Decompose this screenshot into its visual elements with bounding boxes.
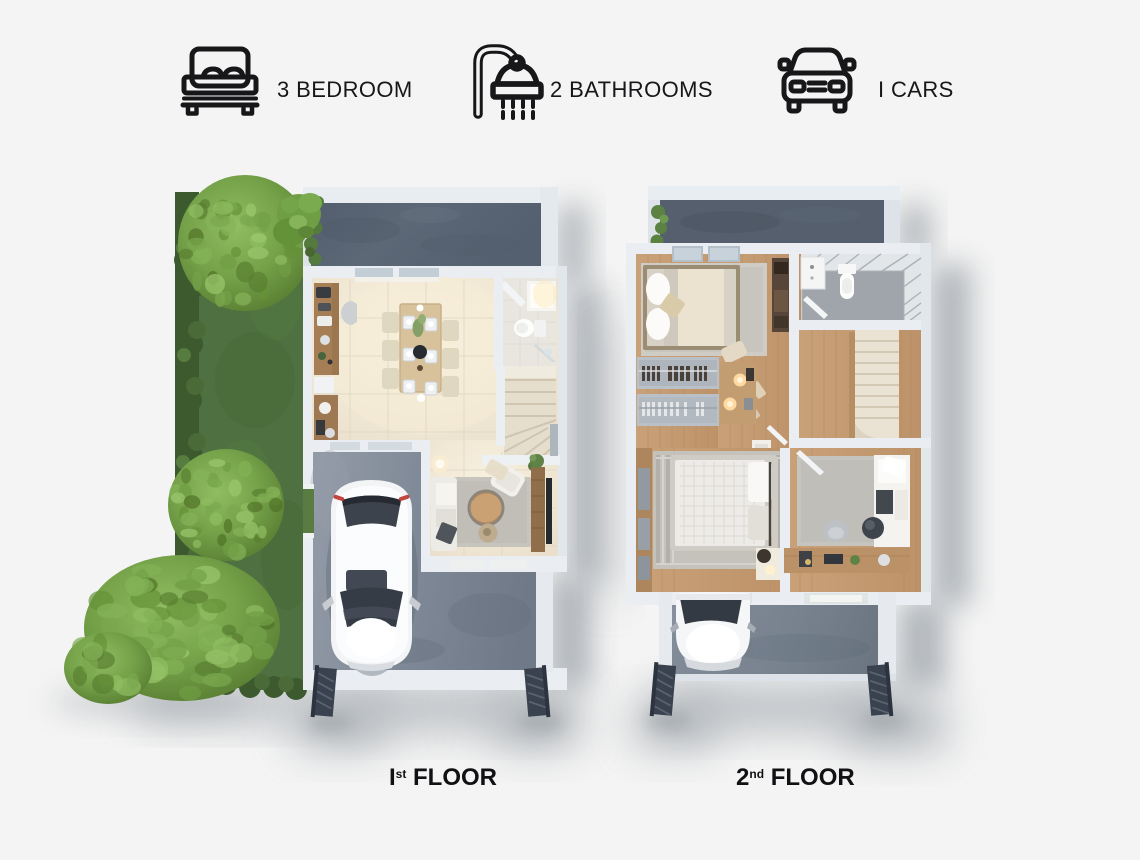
svg-text:3 BEDROOM: 3 BEDROOM	[277, 77, 413, 102]
svg-text:2 BATHROOMS: 2 BATHROOMS	[550, 77, 713, 102]
svg-text:I CARS: I CARS	[878, 77, 954, 102]
